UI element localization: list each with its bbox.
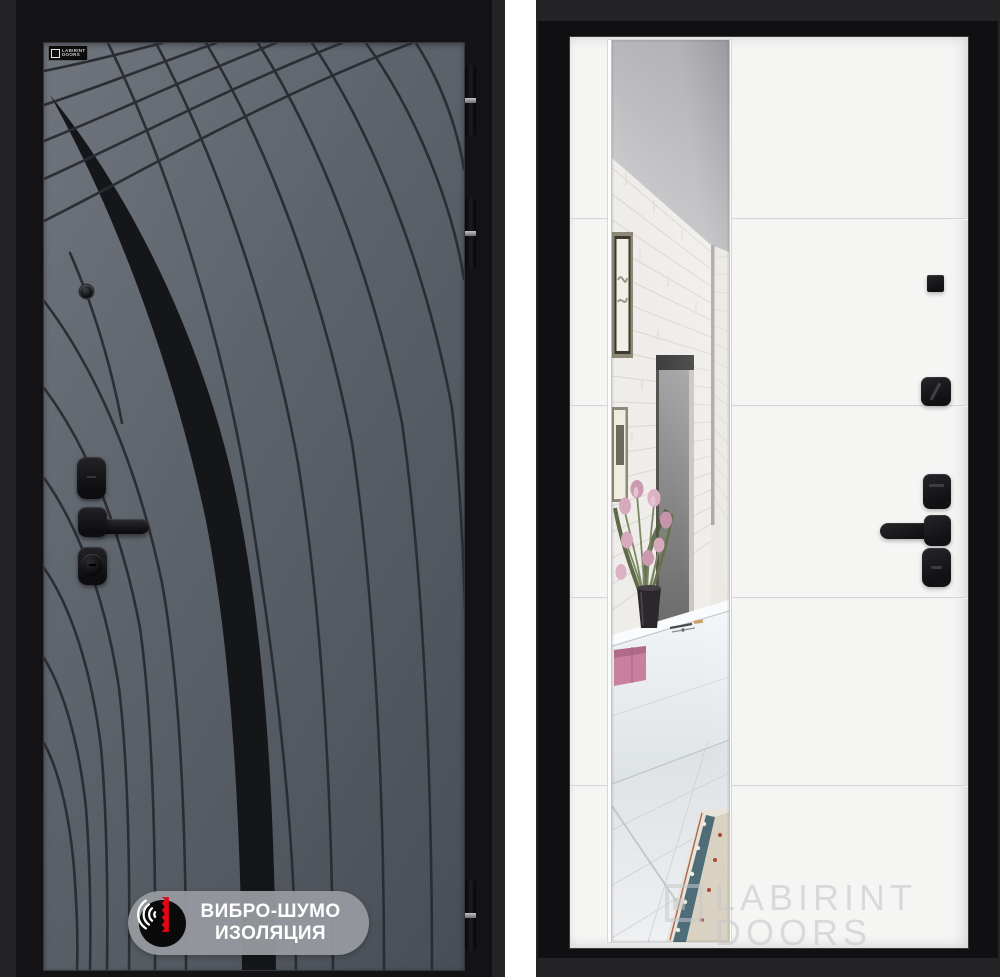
right-door-photo: LABIRINT DOORS xyxy=(536,0,1000,977)
door-hinge-middle xyxy=(465,197,476,270)
door-hinge-top xyxy=(465,64,476,137)
mirror-reflection xyxy=(611,40,730,942)
brand-watermark: LABIRINT DOORS xyxy=(665,880,917,950)
lock-escutcheon xyxy=(922,548,951,587)
product-photo-collage: LABIRINT DOORS xyxy=(0,0,1000,977)
brand-plate-text: LABIRINT DOORS xyxy=(62,49,85,58)
peephole xyxy=(80,285,93,298)
brand-logo-icon xyxy=(51,49,60,58)
insulation-badge-text: ВИБРО-ШУМО ИЗОЛЯЦИЯ xyxy=(186,901,369,945)
thumb-turn-knob xyxy=(921,377,951,406)
left-door-photo: LABIRINT DOORS xyxy=(0,0,505,977)
lock-cover-plate xyxy=(77,457,106,499)
sound-waves-icon xyxy=(139,900,186,947)
flow-pattern xyxy=(44,43,464,970)
keyhole-knob xyxy=(81,554,103,576)
door-handle-escutcheon xyxy=(78,507,107,537)
watermark-logo-icon xyxy=(665,884,703,922)
mirror xyxy=(608,40,731,942)
insulation-badge: ВИБРО-ШУМО ИЗОЛЯЦИЯ xyxy=(128,891,369,955)
deadbolt-cover-square xyxy=(927,275,944,292)
key-escutcheon xyxy=(923,474,951,509)
interior-handle-base xyxy=(924,515,951,546)
watermark-text: LABIRINT DOORS xyxy=(715,880,917,950)
door-panel: LABIRINT DOORS xyxy=(44,43,464,970)
brand-plate: LABIRINT DOORS xyxy=(48,45,88,61)
keyhole-escutcheon xyxy=(78,547,107,585)
door-hinge-bottom xyxy=(465,879,476,952)
door-leaf: LABIRINT DOORS xyxy=(570,37,968,948)
